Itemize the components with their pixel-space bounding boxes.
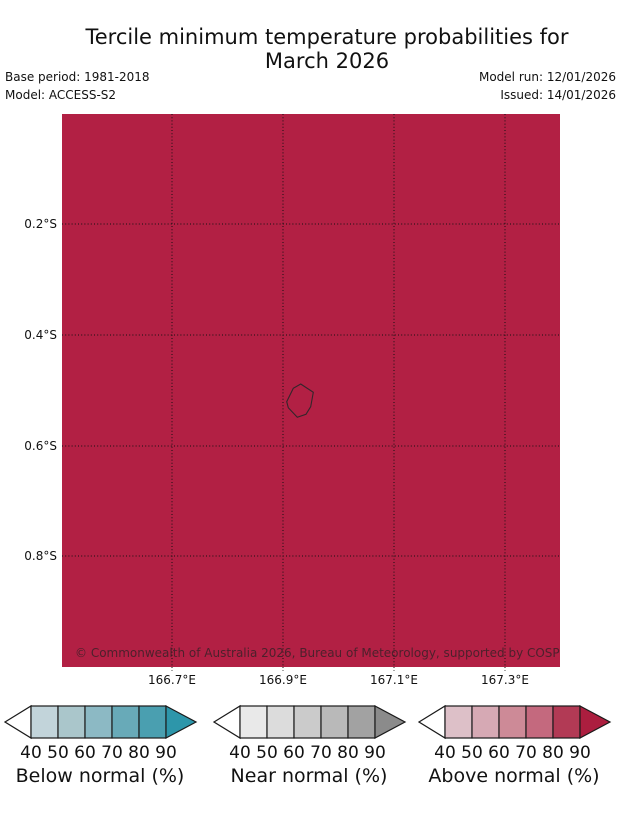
colorbar-tick-label: 90	[569, 743, 591, 763]
colorbar-title: Below normal (%)	[16, 765, 185, 787]
y-tick-label: 0.8°S	[0, 548, 57, 564]
colorbar-segment	[240, 706, 267, 738]
over-range-arrow-icon	[580, 706, 610, 738]
colorbar-tick-label: 70	[515, 743, 537, 763]
x-tick-label: 167.3°E	[465, 672, 545, 688]
colorbar-tick-label: 50	[47, 743, 69, 763]
colorbar-title: Above normal (%)	[428, 765, 599, 787]
colorbar-tick-label: 80	[128, 743, 150, 763]
y-tick-label: 0.2°S	[0, 216, 57, 232]
title-line1: Tercile minimum temperature probabilitie…	[33, 25, 621, 49]
colorbar-tick-label: 40	[20, 743, 42, 763]
colorbar-segment	[499, 706, 526, 738]
under-range-arrow-icon	[419, 706, 445, 738]
issued-label: Issued: 14/01/2026	[479, 87, 616, 105]
meta-left: Base period: 1981-2018 Model: ACCESS-S2	[5, 69, 150, 104]
colorbar-tick-label: 50	[461, 743, 483, 763]
over-range-arrow-icon	[166, 706, 196, 738]
colorbar-segment	[553, 706, 580, 738]
colorbar-tick-label: 50	[256, 743, 278, 763]
colorbar-tick-label: 80	[542, 743, 564, 763]
over-range-arrow-icon	[375, 706, 405, 738]
colorbar-tick-label: 80	[337, 743, 359, 763]
colorbar-segment	[31, 706, 58, 738]
meta-right: Model run: 12/01/2026 Issued: 14/01/2026	[479, 69, 616, 104]
base-period-label: Base period: 1981-2018	[5, 69, 150, 87]
colorbar-tick-label: 70	[101, 743, 123, 763]
colorbar-tick-label: 60	[283, 743, 305, 763]
x-tick-label: 167.1°E	[354, 672, 434, 688]
colorbar-segment	[294, 706, 321, 738]
y-tick-label: 0.4°S	[0, 327, 57, 343]
map-area: © Commonwealth of Australia 2026, Bureau…	[62, 114, 560, 667]
colorbar-segment	[472, 706, 499, 738]
colorbar-tick-label: 40	[434, 743, 456, 763]
colorbar-tick-label: 60	[488, 743, 510, 763]
colorbar-segment	[348, 706, 375, 738]
model-run-label: Model run: 12/01/2026	[479, 69, 616, 87]
colorbar-title: Near normal (%)	[231, 765, 388, 787]
y-tick-label: 0.6°S	[0, 438, 57, 454]
figure-title: Tercile minimum temperature probabilitie…	[0, 25, 621, 73]
colorbar-tick-label: 40	[229, 743, 251, 763]
figure-root: Tercile minimum temperature probabilitie…	[0, 0, 621, 839]
copyright-text: © Commonwealth of Australia 2026, Bureau…	[75, 646, 560, 660]
colorbar-segment	[526, 706, 553, 738]
colorbar-tick-label: 60	[74, 743, 96, 763]
colorbar-above-normal: 405060708090Above normal (%)	[418, 704, 621, 792]
colorbar-tick-label: 70	[310, 743, 332, 763]
colorbar-segment	[139, 706, 166, 738]
colorbar-segment	[85, 706, 112, 738]
colorbar-segment	[112, 706, 139, 738]
colorbar-tick-label: 90	[364, 743, 386, 763]
under-range-arrow-icon	[214, 706, 240, 738]
colorbar-near-normal: 405060708090Near normal (%)	[213, 704, 418, 792]
under-range-arrow-icon	[5, 706, 31, 738]
colorbar-tick-label: 90	[155, 743, 177, 763]
colorbar-segment	[267, 706, 294, 738]
colorbar-segment	[321, 706, 348, 738]
x-tick-label: 166.9°E	[243, 672, 323, 688]
model-label: Model: ACCESS-S2	[5, 87, 150, 105]
colorbar-segment	[58, 706, 85, 738]
colorbar-segment	[445, 706, 472, 738]
x-tick-label: 166.7°E	[132, 672, 212, 688]
colorbar-below-normal: 405060708090Below normal (%)	[4, 704, 209, 792]
